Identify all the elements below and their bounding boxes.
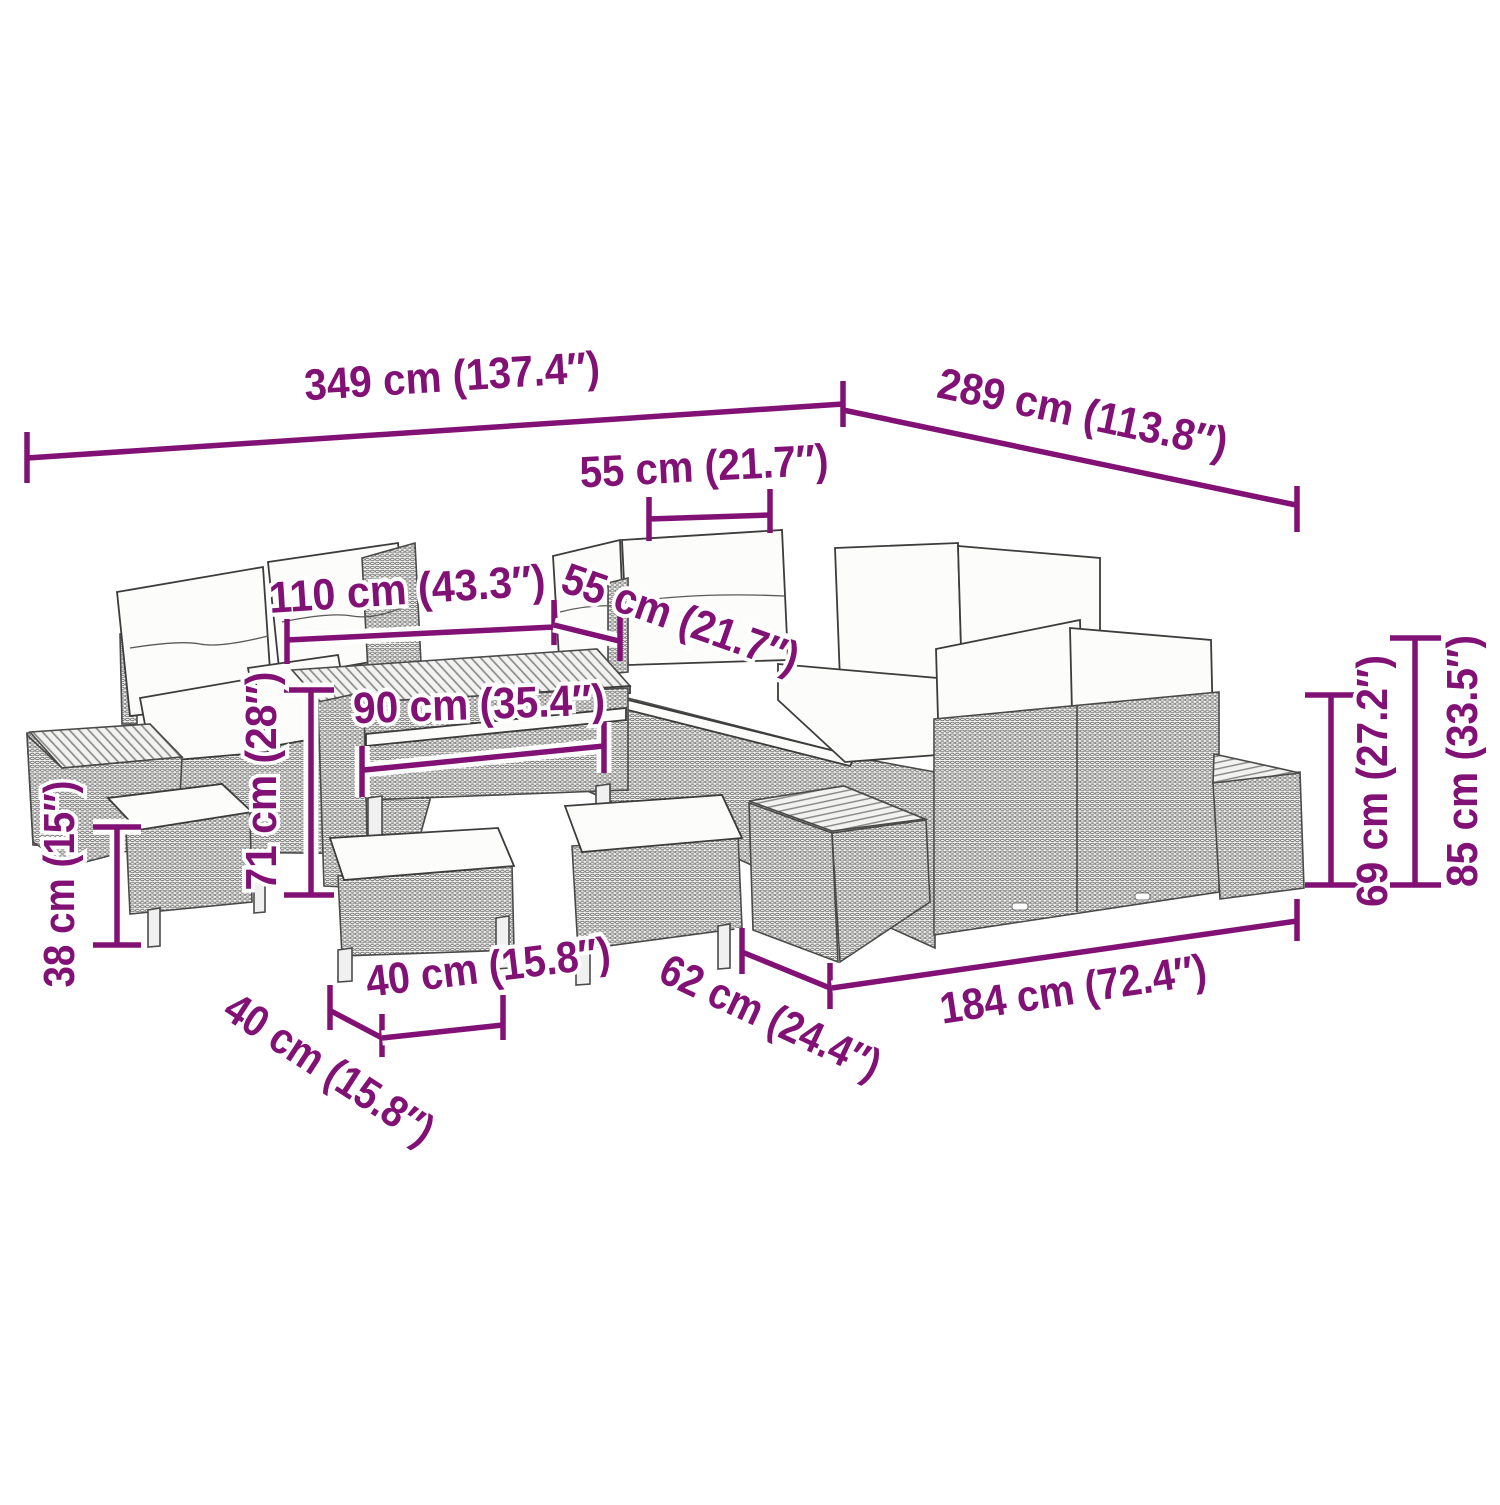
svg-text:71 cm (28″): 71 cm (28″): [237, 672, 286, 891]
svg-text:69 cm (27.2″): 69 cm (27.2″): [1348, 655, 1397, 907]
svg-text:90 cm (35.4″): 90 cm (35.4″): [352, 676, 606, 734]
svg-text:85 cm (33.5″): 85 cm (33.5″): [1438, 635, 1487, 887]
svg-text:38 cm (15″): 38 cm (15″): [35, 781, 84, 988]
